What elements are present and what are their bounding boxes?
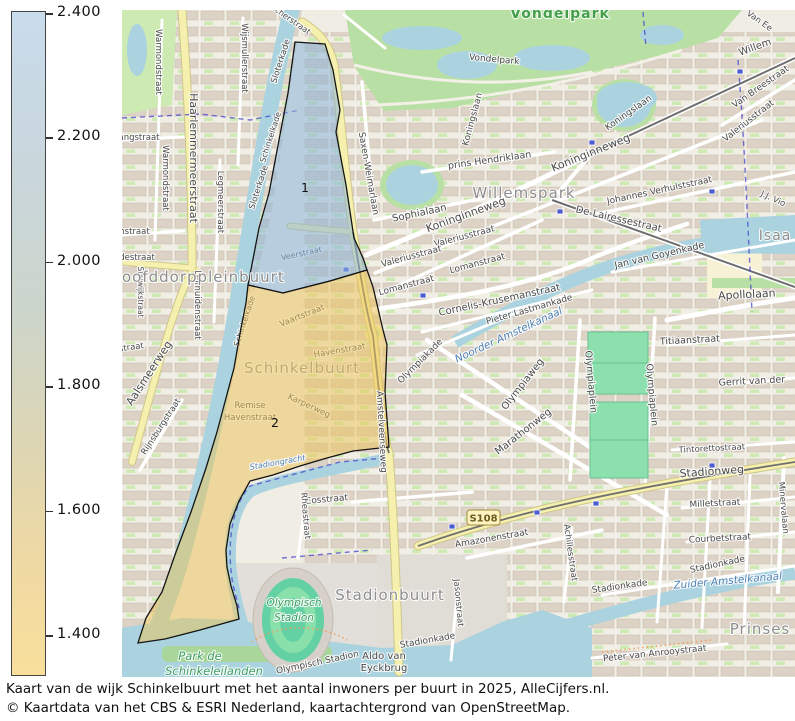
caption-line-2: © Kaartdata van het CBS & ESRI Nederland… <box>6 700 570 716</box>
map-canvas[interactable]: VeerstraatSchinkelkadeVaartstraatHavenst… <box>122 10 795 677</box>
region-number-label: 2 <box>271 415 279 430</box>
area-label: Isaa <box>759 228 792 244</box>
colorbar-tick-label: 2.200 <box>57 128 101 144</box>
park-label: Schinkeleilanden <box>165 664 263 677</box>
area-label: Willemspark <box>472 184 575 202</box>
street-label: Haarlemmermeerstraat <box>187 93 200 223</box>
colorbar-tick-label: 1.800 <box>57 377 101 393</box>
street-label: Legmeerstraat <box>215 171 225 234</box>
park-label: Park de <box>178 649 221 663</box>
road-badge-s108: S108 <box>467 510 500 525</box>
map-svg: VeerstraatSchinkelkadeVaartstraatHavenst… <box>122 10 795 677</box>
street-label: Wijsmullerstraat <box>239 23 249 93</box>
street-label: Aldo van <box>362 651 406 662</box>
park-label: Vondelpark <box>510 10 610 22</box>
park-label: Stadion <box>274 612 314 624</box>
caption-line-1: Kaart van de wijk Schinkelbuurt met het … <box>6 681 609 697</box>
colorbar-tick <box>46 386 53 388</box>
area-label: Prinses <box>730 620 790 638</box>
park-label: Olympisch <box>266 597 321 609</box>
colorbar-tick <box>46 137 53 139</box>
street-label: angstraat <box>122 133 160 143</box>
street-label: Warmondstraat <box>160 145 170 211</box>
colorbar-tick-label: 2.400 <box>57 4 101 20</box>
colorbar-gradient <box>11 11 46 676</box>
colorbar-tick-label: 1.400 <box>57 626 101 642</box>
colorbar-tick <box>46 635 53 637</box>
colorbar-tick-label: 1.600 <box>57 502 101 518</box>
colorbar-tick <box>46 13 53 15</box>
colorbar-tick <box>46 262 53 264</box>
street-label: Warmondstraat <box>153 29 163 95</box>
street-label: destraat <box>122 253 155 263</box>
street-label: mstraat <box>122 227 150 237</box>
area-label: oofddorppleinbuurt <box>122 268 285 286</box>
page: 2.4002.2002.0001.8001.6001.400 <box>0 0 795 721</box>
colorbar-tick <box>46 511 53 513</box>
legend-colorbar: 2.4002.2002.0001.8001.6001.400 <box>0 0 122 721</box>
area-label: Stadionbuurt <box>335 586 445 604</box>
road-badge-label: S108 <box>469 514 497 525</box>
street-label: Eyckbrug <box>361 663 408 674</box>
colorbar-tick-label: 2.000 <box>57 253 101 269</box>
region-number-label: 1 <box>301 180 309 195</box>
